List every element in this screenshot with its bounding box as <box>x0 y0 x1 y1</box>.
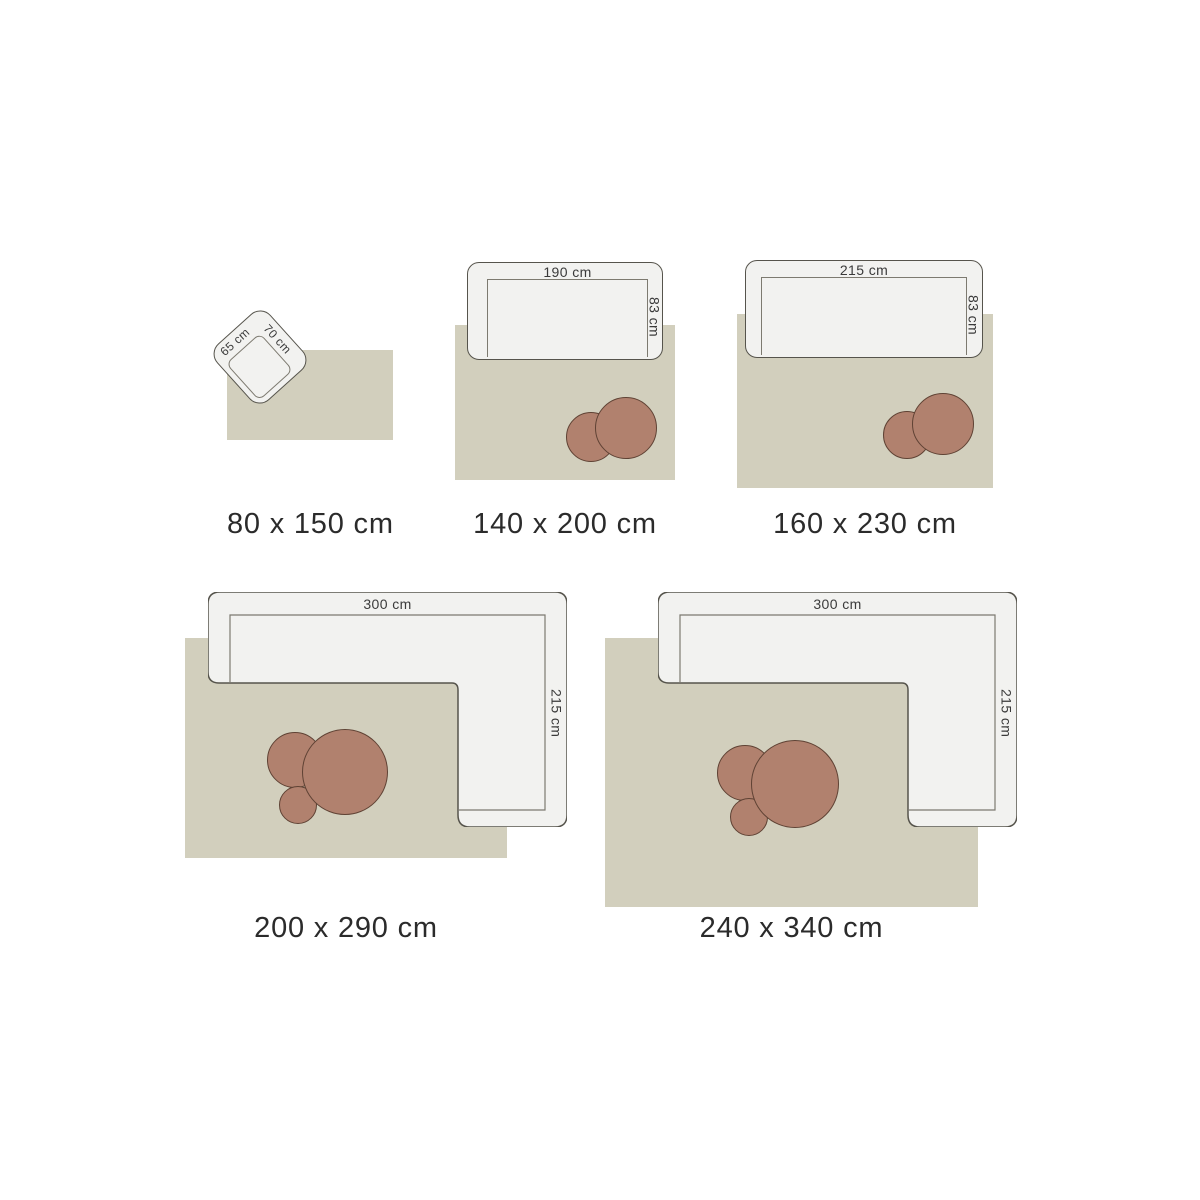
rug-size-label: 240 x 340 cm <box>605 912 978 945</box>
sofa-topview: 190 cm 83 cm <box>467 262 663 360</box>
rug-size-label: 160 x 230 cm <box>737 508 993 541</box>
sofa-topview: 215 cm 83 cm <box>745 260 983 358</box>
corner-sofa-topview <box>658 592 1017 827</box>
furniture-width-label: 190 cm <box>487 264 648 279</box>
coffee-table-circle <box>912 393 974 455</box>
corner-sofa-topview <box>208 592 567 827</box>
furniture-depth-label: 83 cm <box>967 277 980 353</box>
furniture-depth-label: 215 cm <box>997 616 1016 810</box>
rug-size-label: 200 x 290 cm <box>185 912 507 945</box>
rug-size-label: 80 x 150 cm <box>227 508 393 541</box>
sofa-seat <box>487 279 648 357</box>
rug-size-guide: 65 cm 70 cm 80 x 150 cm 190 cm 83 cm 140… <box>0 0 1200 1200</box>
sofa-seat <box>761 277 967 355</box>
furniture-width-label: 215 cm <box>761 262 967 277</box>
furniture-width-label: 300 cm <box>208 594 567 613</box>
corner-sofa-outline <box>208 592 567 827</box>
rug-size-label: 140 x 200 cm <box>455 508 675 541</box>
coffee-table-circle <box>595 397 657 459</box>
furniture-width-label: 300 cm <box>658 594 1017 613</box>
furniture-depth-label: 215 cm <box>547 616 566 810</box>
furniture-depth-label: 83 cm <box>648 279 661 355</box>
corner-sofa-outline <box>658 592 1017 827</box>
